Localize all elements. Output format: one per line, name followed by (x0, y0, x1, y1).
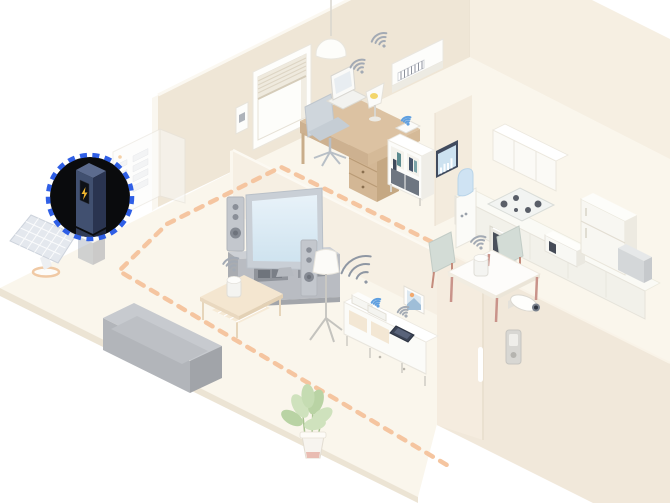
video-intercom (506, 330, 521, 364)
smart-home-illustration (0, 0, 670, 503)
wall-thermostat (236, 102, 248, 134)
door-handle (478, 347, 483, 382)
speaker-tower (227, 197, 244, 251)
water-dispenser (456, 169, 476, 248)
